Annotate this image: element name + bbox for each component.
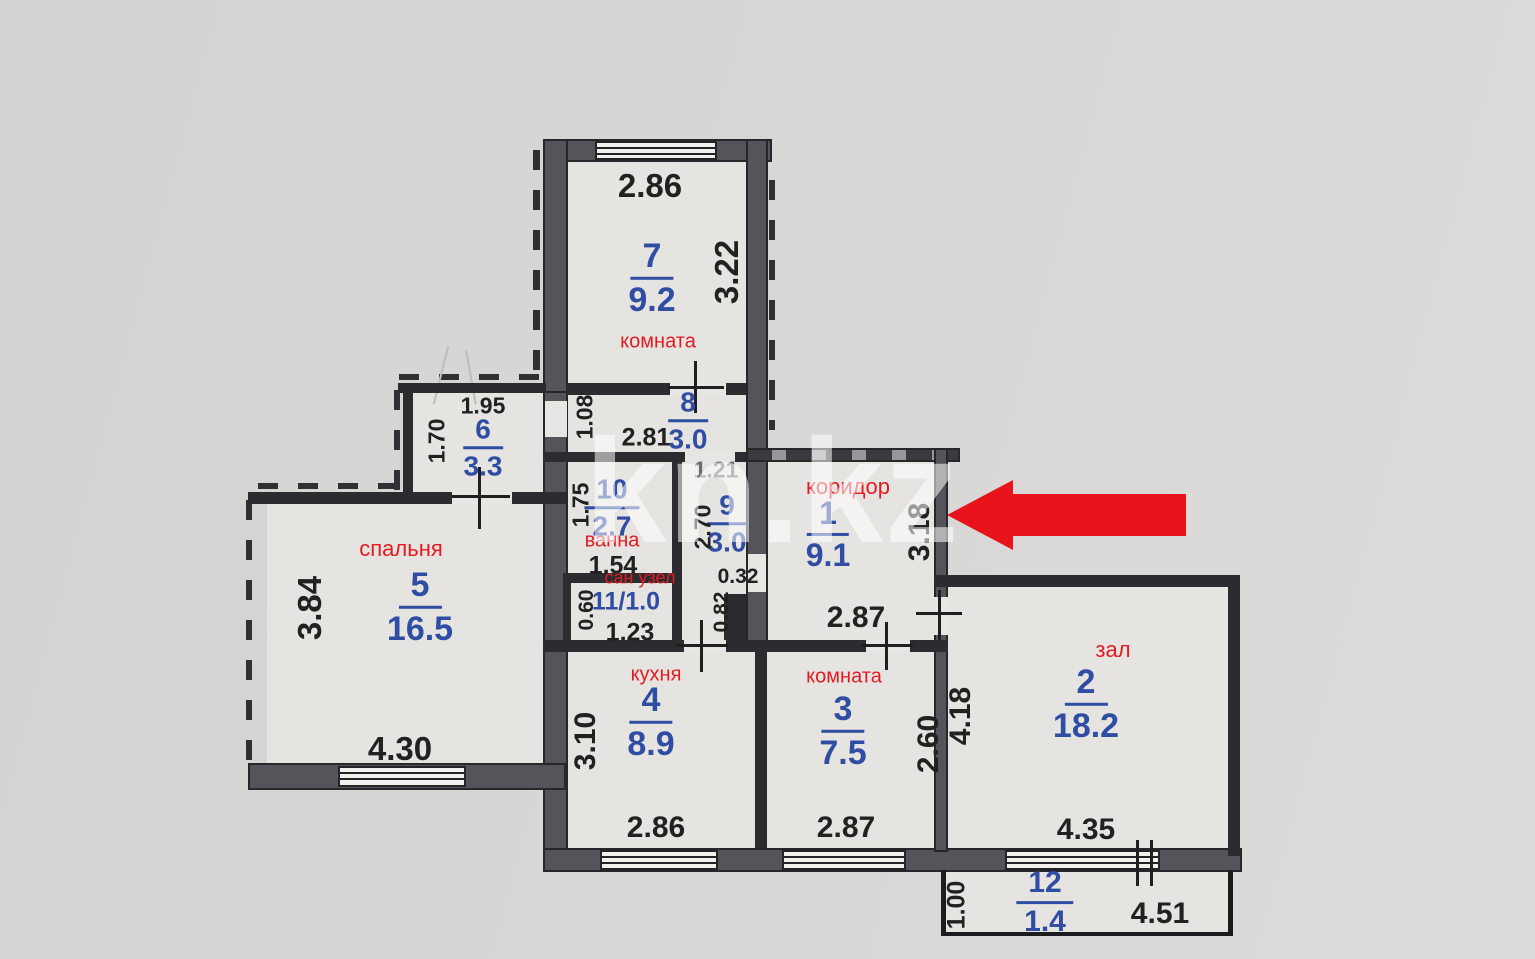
room-4-area: 8.9 <box>627 724 674 763</box>
window <box>338 766 466 787</box>
floor-plan: 7 9.2 6 3.3 8 3.0 10 2.7 9 3.0 1 9.1 11/… <box>0 0 1535 959</box>
dim-room4-depth: 3.10 <box>569 712 603 770</box>
red-arrow <box>940 472 1192 562</box>
wall-partition <box>403 383 413 497</box>
room-4-tag: 4 8.9 <box>627 682 674 762</box>
dim-room3-depth: 2.60 <box>912 715 946 773</box>
axis-tick <box>452 495 510 498</box>
room-3-area: 7.5 <box>819 733 866 772</box>
dim-room11-width: 1.23 <box>606 619 655 648</box>
room-2-tag: 2 18.2 <box>1053 664 1119 744</box>
axis-tick <box>1150 840 1153 886</box>
wall-partition <box>248 492 566 504</box>
hatch-mark <box>769 180 775 430</box>
room-3-tag: 3 7.5 <box>819 691 866 771</box>
axis-tick <box>861 644 913 647</box>
dim-room4-width: 2.86 <box>627 811 685 845</box>
dim-room2-depth: 4.18 <box>944 687 978 745</box>
room-6-area: 3.3 <box>463 450 503 482</box>
hatch-mark <box>533 150 540 386</box>
room-12-number: 12 <box>1016 867 1073 904</box>
room-4-number: 4 <box>630 682 673 724</box>
window <box>595 141 717 160</box>
wall-segment <box>543 139 568 395</box>
hatch-mark <box>246 500 252 760</box>
room-2-number: 2 <box>1065 664 1108 706</box>
dim-room3-width: 2.87 <box>817 811 875 845</box>
room-3-number: 3 <box>822 691 865 733</box>
room-5-tag: 5 16.5 <box>387 567 453 647</box>
room-12-tag: 12 1.4 <box>1016 867 1073 939</box>
room-7-number: 7 <box>631 238 674 280</box>
room-11-tag: 11/1.0 <box>592 588 660 617</box>
room-5-label: спальня <box>359 536 443 562</box>
dim-balcony-depth: 1.00 <box>943 881 972 930</box>
room-2-area: 18.2 <box>1053 706 1119 745</box>
room-7-tag: 7 9.2 <box>628 238 675 318</box>
window <box>600 850 718 870</box>
door-opening <box>545 401 567 437</box>
wall-partition <box>755 652 767 848</box>
room-2-label: зал <box>1095 637 1130 663</box>
watermark: kn.kz <box>584 407 959 577</box>
hatch-mark <box>394 390 400 494</box>
window <box>782 850 906 870</box>
wall-partition <box>398 383 546 393</box>
dim-room7-width: 2.86 <box>618 167 682 205</box>
axis-tick <box>916 612 962 615</box>
door-opening <box>934 597 948 635</box>
room-7-area: 9.2 <box>628 280 675 319</box>
balcony-wall <box>1228 870 1233 936</box>
dim-room5-width: 4.30 <box>368 730 432 768</box>
room-5-area: 16.5 <box>387 609 453 648</box>
dim-room7-depth: 3.22 <box>708 240 746 304</box>
dim-room11-depth: 0.60 <box>575 590 599 631</box>
room-7-label: комната <box>620 331 696 354</box>
dim-room1-width: 2.87 <box>827 601 885 635</box>
dim-room6-width: 1.95 <box>461 393 506 420</box>
axis-tick <box>938 590 941 640</box>
wall-partition <box>1228 575 1240 856</box>
hatch-mark <box>258 483 394 489</box>
room-5-number: 5 <box>399 567 442 609</box>
dim-room5-depth: 3.84 <box>291 576 329 640</box>
dim-room6-depth: 1.70 <box>424 419 451 464</box>
axis-tick <box>676 644 728 647</box>
door-opening <box>452 492 512 504</box>
room-3-label: комната <box>806 666 882 689</box>
dim-room2-width: 4.35 <box>1057 813 1115 847</box>
dim-room9-low: 0.82 <box>710 592 734 633</box>
balcony-wall <box>941 932 1233 936</box>
axis-tick <box>1136 840 1139 886</box>
room-6-number: 6 <box>463 414 503 449</box>
dim-balcony-width: 4.51 <box>1131 897 1189 931</box>
wall-partition <box>934 575 1240 587</box>
room-12-area: 1.4 <box>1016 905 1073 939</box>
room-4-label: кухня <box>631 664 682 687</box>
room-6-tag: 6 3.3 <box>463 414 503 481</box>
